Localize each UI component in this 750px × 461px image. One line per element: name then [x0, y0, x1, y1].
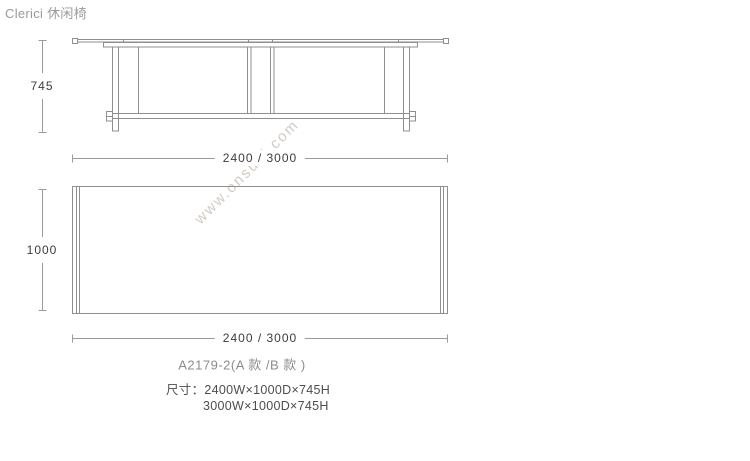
depth-dimension-label: 1000 — [25, 237, 60, 263]
product-title: Clerici 休闲椅 — [5, 3, 87, 22]
technical-drawing — [0, 0, 750, 461]
plan-view — [73, 187, 448, 314]
front-elevation-view — [73, 39, 449, 132]
tabletop — [78, 40, 444, 43]
apron — [104, 43, 418, 48]
spec-sheet: www.onsuni.com Clerici 休闲椅 745 2400 / 30… — [0, 0, 750, 461]
tabletop-end-cap-left — [73, 39, 78, 44]
model-number: A2179-2(A 款 /B 款 ) — [178, 355, 306, 374]
center-post-2 — [271, 47, 275, 114]
dimension-lines — [39, 40, 449, 343]
tabletop-outline — [73, 187, 448, 314]
stretcher — [113, 114, 410, 119]
width-dimension-label-top: 2400 / 3000 — [215, 150, 305, 166]
tabletop-end-cap-right — [444, 39, 449, 44]
width-dimension-label-bottom: 2400 / 3000 — [215, 330, 305, 346]
height-dimension-label: 745 — [28, 73, 55, 99]
size-spec-line-1: 尺寸：2400W×1000D×745H — [166, 379, 330, 398]
size-spec-line-2: 3000W×1000D×745H — [203, 399, 329, 413]
center-post-1 — [248, 47, 252, 114]
